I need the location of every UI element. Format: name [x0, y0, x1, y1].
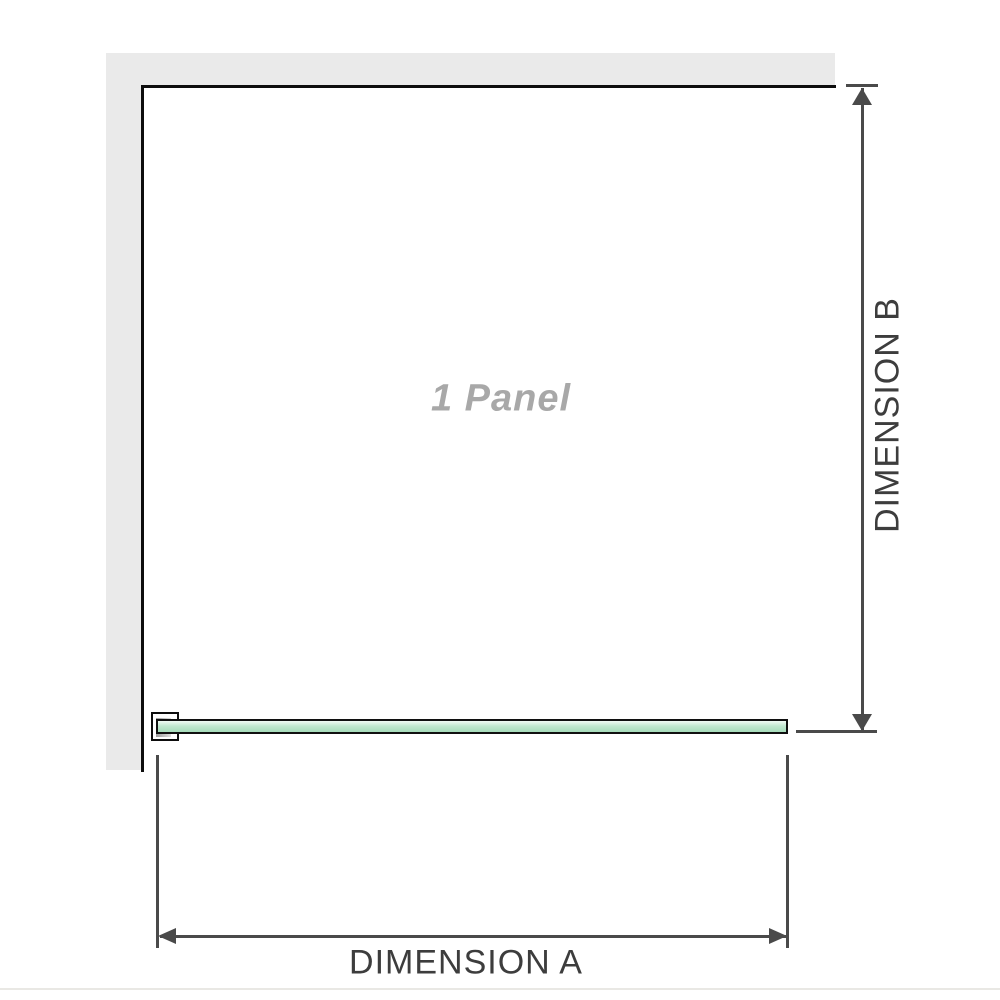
arrow-left-icon — [158, 928, 176, 944]
wall-inner-edge-top — [141, 85, 836, 88]
wall-left — [106, 53, 142, 770]
dimension-a-line — [160, 935, 786, 938]
wall-top — [106, 53, 835, 85]
wall-inner-edge-left — [141, 85, 144, 772]
arrow-right-icon — [769, 928, 787, 944]
arrow-down-icon — [852, 714, 872, 731]
installation-diagram: 1 Panel DIMENSION B DIMENSION A — [0, 0, 1000, 1000]
dimension-a-label: DIMENSION A — [349, 944, 583, 983]
dimension-b-label: DIMENSION B — [869, 297, 908, 533]
panel-count-label: 1 Panel — [431, 378, 571, 421]
glass-panel — [156, 719, 788, 734]
dimension-b-top-tick — [846, 84, 878, 87]
dimension-a-right-extension-line — [786, 755, 789, 948]
dimension-b-line — [861, 88, 864, 731]
arrow-up-icon — [852, 88, 872, 105]
image-bottom-divider — [0, 988, 1000, 990]
dimension-a-left-extension-line — [156, 755, 159, 948]
